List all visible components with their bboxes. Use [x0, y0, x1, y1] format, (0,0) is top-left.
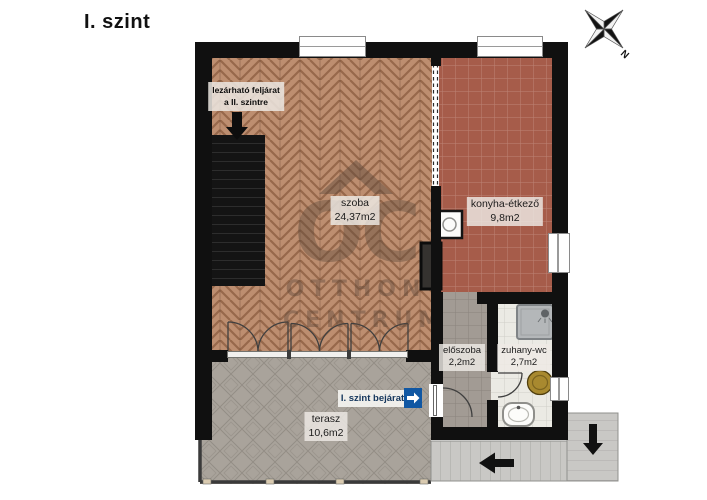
- stairs-note-label: lezárható feljárat a II. szintre: [208, 82, 284, 111]
- stairs-note-line1: lezárható feljárat: [212, 85, 280, 95]
- terrace-door-sill: [227, 351, 408, 358]
- shower-icon: [517, 305, 553, 339]
- floorplan-canvas: [0, 0, 707, 500]
- room-name: konyha-étkező: [471, 198, 539, 210]
- entrance-arrow-icon: [404, 388, 422, 408]
- window-konyha-right: [548, 233, 570, 273]
- room-area: 9,8m2: [471, 212, 539, 226]
- sink-icon: [503, 403, 534, 426]
- dashed-partition: [432, 64, 439, 186]
- window-konyha-top: [477, 36, 543, 57]
- room-label-szoba: szoba 24,37m2: [331, 196, 380, 225]
- wall-bath-bottom: [431, 427, 568, 440]
- window-szoba-top: [299, 36, 366, 57]
- room-label-eloszoba: előszoba 2,2m2: [439, 344, 485, 371]
- entrance-door-opening: [429, 384, 443, 417]
- wall-partition-lower: [431, 186, 441, 292]
- compass-north-label: N: [618, 48, 631, 61]
- door-mullion: [287, 350, 291, 359]
- room-name: előszoba: [443, 345, 481, 356]
- toilet-icon: [528, 371, 553, 395]
- room-area: 10,6m2: [308, 427, 343, 441]
- wall-kitchen-bath-b: [477, 292, 568, 304]
- wall-eloszoba-zuhany-lower: [487, 400, 498, 430]
- entrance-label: I. szint bejárat: [338, 390, 407, 407]
- room-name: terasz: [312, 413, 341, 425]
- room-label-zuhany: zuhany-wc 2,7m2: [497, 344, 550, 371]
- wall-partition-stub: [431, 58, 441, 66]
- window-zuhany-right: [550, 377, 569, 401]
- room-label-terasz: terasz 10,6m2: [304, 412, 347, 441]
- stairs-note-line2: a II. szintre: [224, 97, 268, 107]
- floorplan-page: OC OTTHON CENTRUM I. szint szoba 24,37m2…: [0, 0, 707, 500]
- room-area: 2,2m2: [443, 357, 481, 369]
- room-name: zuhany-wc: [501, 345, 546, 356]
- page-title: I. szint: [84, 11, 150, 34]
- entrance-door-leaf: [433, 385, 437, 416]
- compass-icon: N: [576, 2, 638, 64]
- room-konyha-floor: [439, 58, 554, 292]
- room-label-konyha: konyha-étkező 9,8m2: [467, 197, 543, 226]
- door-mullion: [347, 350, 351, 359]
- room-name: szoba: [341, 197, 369, 209]
- room-area: 2,7m2: [501, 357, 546, 369]
- wall-szoba-bottom-left: [195, 350, 228, 362]
- room-area: 24,37m2: [335, 211, 376, 225]
